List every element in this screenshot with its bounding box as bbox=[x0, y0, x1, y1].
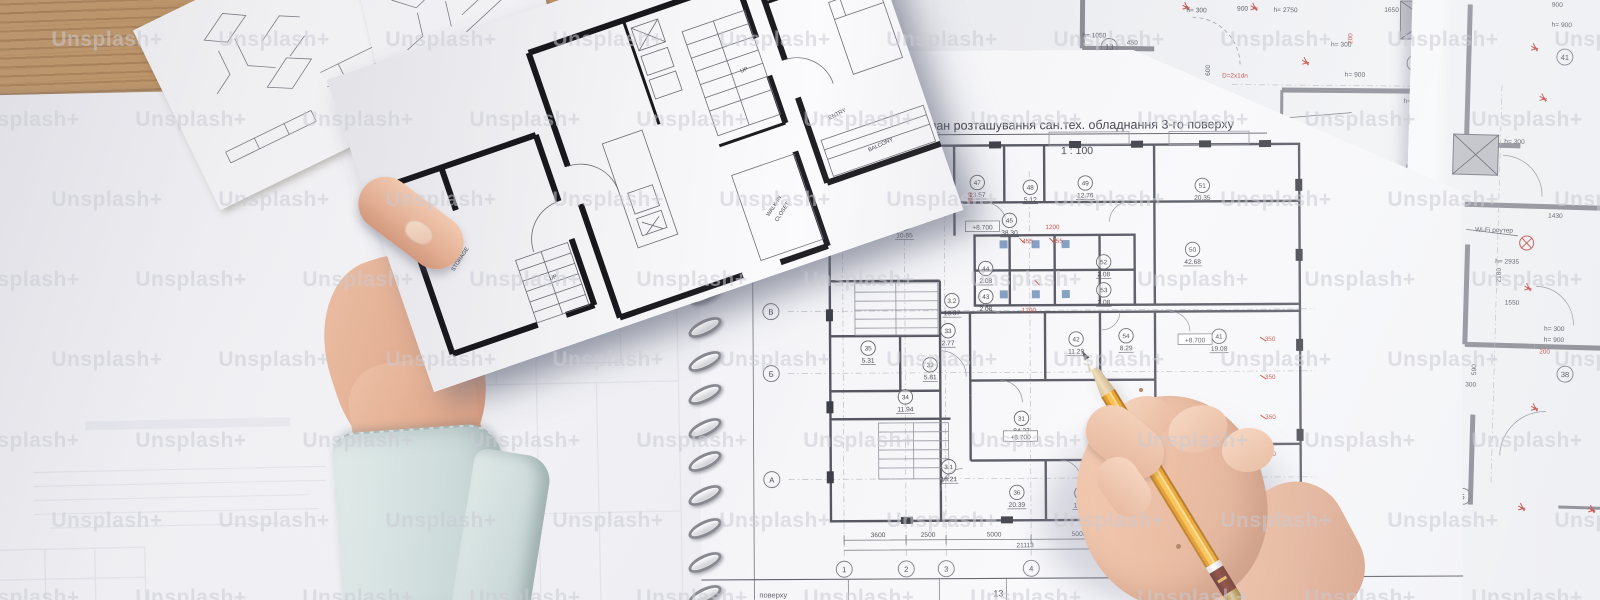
svg-text:900: 900 bbox=[1237, 6, 1248, 13]
svg-text:42: 42 bbox=[1072, 336, 1080, 343]
svg-text:1550: 1550 bbox=[1505, 299, 1520, 306]
svg-text:5000: 5000 bbox=[987, 531, 1002, 538]
svg-text:2.08: 2.08 bbox=[1097, 299, 1110, 306]
svg-text:h= 2750: h= 2750 bbox=[1274, 7, 1298, 14]
svg-text:2: 2 bbox=[904, 565, 908, 574]
photo-canvas: Керування розеткою 220VРозетки в констру… bbox=[0, 0, 1600, 600]
svg-text:2500: 2500 bbox=[921, 532, 936, 539]
svg-text:18.37: 18.37 bbox=[944, 310, 961, 317]
svg-text:350: 350 bbox=[1265, 374, 1276, 381]
svg-text:5.31: 5.31 bbox=[862, 358, 875, 365]
svg-text:600: 600 bbox=[1205, 65, 1212, 76]
svg-text:2.77: 2.77 bbox=[942, 340, 955, 347]
svg-text:BALCONY: BALCONY bbox=[867, 137, 894, 154]
svg-text:54: 54 bbox=[1122, 333, 1130, 340]
svg-text:52: 52 bbox=[1100, 259, 1108, 266]
svg-text:455: 455 bbox=[1022, 238, 1033, 245]
svg-text:200: 200 bbox=[1347, 33, 1354, 44]
svg-text:ENTRY: ENTRY bbox=[828, 108, 848, 122]
svg-text:455: 455 bbox=[1052, 238, 1063, 245]
svg-text:h= 900: h= 900 bbox=[1544, 337, 1565, 345]
svg-text:50: 50 bbox=[1189, 247, 1197, 254]
svg-text:41: 41 bbox=[1561, 53, 1570, 62]
svg-text:1700: 1700 bbox=[1022, 307, 1037, 314]
svg-text:1: 1 bbox=[842, 565, 846, 574]
svg-text:Wi-Fi роутер: Wi-Fi роутер bbox=[1475, 227, 1514, 235]
pencil-graphite-tip bbox=[1079, 349, 1089, 361]
svg-text:12.76: 12.76 bbox=[1077, 192, 1094, 199]
total-dimension: 21113 bbox=[1016, 542, 1034, 549]
svg-text:3.1: 3.1 bbox=[944, 464, 953, 471]
svg-text:51: 51 bbox=[1199, 183, 1207, 190]
svg-text:42.68: 42.68 bbox=[1184, 259, 1201, 266]
svg-text:450: 450 bbox=[1127, 40, 1138, 47]
svg-text:200: 200 bbox=[1539, 348, 1550, 355]
svg-text:35: 35 bbox=[865, 345, 873, 352]
svg-text:Б: Б bbox=[769, 370, 774, 379]
titleblock-left-text: поверху bbox=[759, 591, 787, 600]
svg-text:53: 53 bbox=[1100, 287, 1108, 294]
svg-text:1200: 1200 bbox=[1045, 224, 1060, 231]
svg-text:36: 36 bbox=[1013, 490, 1021, 497]
svg-text:3.2: 3.2 bbox=[947, 298, 956, 305]
svg-text:h= 300: h= 300 bbox=[1186, 7, 1207, 14]
svg-text:А: А bbox=[769, 476, 775, 485]
svg-text:h= 2935: h= 2935 bbox=[1495, 258, 1520, 266]
svg-text:2.08: 2.08 bbox=[979, 278, 992, 285]
svg-text:3600: 3600 bbox=[871, 532, 886, 539]
svg-text:h= 300: h= 300 bbox=[1504, 138, 1525, 146]
svg-text:2180: 2180 bbox=[1496, 268, 1503, 283]
svg-text:4: 4 bbox=[1029, 564, 1033, 573]
svg-text:48: 48 bbox=[1027, 185, 1035, 192]
svg-text:h= 900: h= 900 bbox=[1551, 22, 1572, 30]
svg-text:300: 300 bbox=[1465, 381, 1477, 388]
titleblock-page-number: 13 bbox=[993, 588, 1003, 598]
svg-text:20.39: 20.39 bbox=[1009, 502, 1026, 509]
svg-text:1430: 1430 bbox=[1548, 213, 1563, 220]
svg-text:h= 300: h= 300 bbox=[1544, 326, 1565, 334]
svg-text:45: 45 bbox=[1006, 218, 1014, 225]
svg-text:2.08: 2.08 bbox=[1097, 271, 1110, 278]
svg-text:19.08: 19.08 bbox=[1211, 346, 1228, 353]
svg-text:+8.700: +8.700 bbox=[1185, 337, 1206, 344]
svg-text:34: 34 bbox=[902, 394, 910, 401]
plan-title: План розташування сан.тех. обладнання 3-… bbox=[920, 117, 1235, 133]
svg-text:44: 44 bbox=[982, 266, 990, 273]
svg-text:8.29: 8.29 bbox=[1120, 345, 1133, 352]
svg-text:3: 3 bbox=[944, 565, 948, 574]
svg-text:41: 41 bbox=[1215, 334, 1223, 341]
svg-text:UP: UP bbox=[740, 66, 750, 74]
svg-text:590: 590 bbox=[1471, 364, 1478, 376]
svg-text:31: 31 bbox=[1018, 416, 1026, 423]
svg-text:20.35: 20.35 bbox=[1194, 195, 1211, 202]
svg-text:38.30: 38.30 bbox=[1001, 230, 1018, 237]
svg-text:В: В bbox=[768, 308, 773, 317]
svg-text:h= 900: h= 900 bbox=[1345, 72, 1366, 79]
svg-text:11.94: 11.94 bbox=[897, 406, 913, 413]
svg-text:18.21: 18.21 bbox=[941, 476, 958, 483]
svg-text:43: 43 bbox=[982, 294, 990, 301]
svg-text:32: 32 bbox=[927, 362, 935, 369]
svg-text:33: 33 bbox=[944, 328, 952, 335]
svg-text:h= 1050: h= 1050 bbox=[1082, 32, 1106, 39]
svg-text:1650: 1650 bbox=[1384, 7, 1399, 14]
svg-text:350: 350 bbox=[1265, 414, 1276, 421]
svg-text:38: 38 bbox=[1561, 370, 1570, 379]
svg-text:900: 900 bbox=[1552, 2, 1564, 9]
svg-text:D=2x1dn: D=2x1dn bbox=[1222, 72, 1248, 79]
svg-text:+8.700: +8.700 bbox=[1010, 434, 1031, 441]
skin-mole bbox=[1139, 388, 1143, 392]
svg-text:5.81: 5.81 bbox=[924, 374, 937, 381]
svg-text:2.08: 2.08 bbox=[979, 306, 992, 313]
svg-text:350: 350 bbox=[1265, 336, 1276, 343]
svg-text:5.12: 5.12 bbox=[1024, 197, 1037, 204]
skin-mole bbox=[1176, 544, 1181, 549]
svg-text:49: 49 bbox=[1082, 180, 1090, 187]
